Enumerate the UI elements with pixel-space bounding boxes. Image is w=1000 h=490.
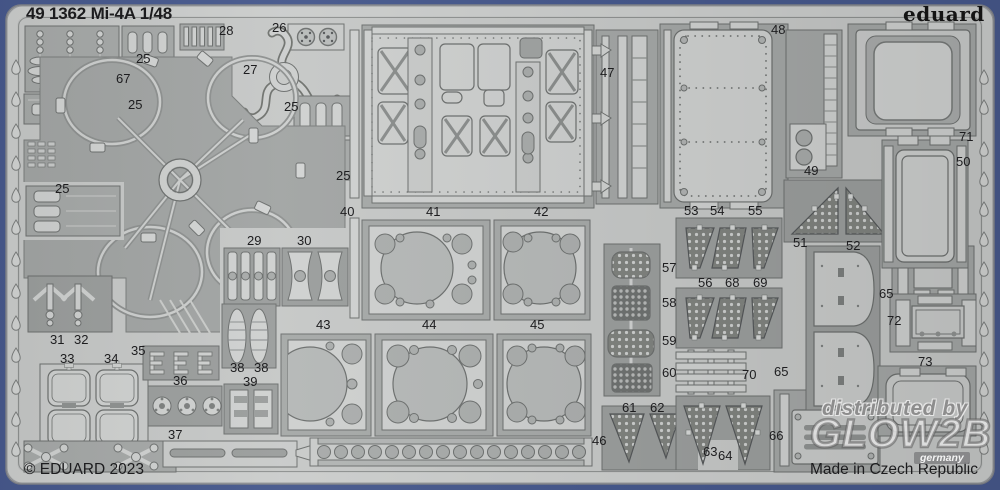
part-number-label: 59 [662,334,676,347]
part-number-label: 54 [710,204,724,217]
part-number-label: 73 [918,355,932,368]
part-number-label: 50 [956,155,970,168]
part-number-label: 42 [534,205,548,218]
watermark-germany: germany [914,452,970,464]
part-number-label: 28 [219,24,233,37]
part-number-label: 72 [887,314,901,327]
part-number-label: 70 [742,368,756,381]
part-number-label: 25 [128,98,142,111]
part-number-label: 67 [116,72,130,85]
part-number-label: 60 [662,366,676,379]
part-number-label: 32 [74,333,88,346]
eduard-logo: eduard [903,2,985,26]
part-number-label: 38 [230,361,244,374]
part-number-label: 53 [684,204,698,217]
part-number-label: 38 [254,361,268,374]
part-number-label: 47 [600,66,614,79]
part-number-label: 68 [725,276,739,289]
product-photo-frame: 6725282627252525252930313233343536383839… [0,0,1000,490]
part-number-label: 25 [336,169,350,182]
part-number-label: 55 [748,204,762,217]
part-number-label: 33 [60,352,74,365]
part-number-label: 62 [650,401,664,414]
part-number-label: 57 [662,261,676,274]
part-number-label: 39 [243,375,257,388]
watermark-glow2b: GLOW2B [810,412,992,456]
part-number-label: 65 [774,365,788,378]
copyright-text: © EDUARD 2023 [24,461,144,479]
part-number-label: 27 [243,63,257,76]
part-number-label: 65 [879,287,893,300]
part-number-label: 61 [622,401,636,414]
part-number-label: 25 [55,182,69,195]
part-number-label: 56 [698,276,712,289]
part-number-label: 66 [769,429,783,442]
part-number-label: 64 [718,449,732,462]
part-number-label: 29 [247,234,261,247]
part-number-label: 48 [771,23,785,36]
part-number-label: 46 [592,434,606,447]
part-number-label: 58 [662,296,676,309]
part-number-label: 35 [131,344,145,357]
part-number-label: 52 [846,239,860,252]
part-number-label: 69 [753,276,767,289]
part-number-label: 26 [272,21,286,34]
part-number-label: 43 [316,318,330,331]
part-number-label: 41 [426,205,440,218]
part-number-label: 37 [168,428,182,441]
part-number-label: 25 [284,100,298,113]
part-number-label: 49 [804,164,818,177]
part-number-label: 51 [793,236,807,249]
part-number-label: 34 [104,352,118,365]
part-number-label: 31 [50,333,64,346]
part-number-label: 25 [136,52,150,65]
part-number-label: 30 [297,234,311,247]
catalog-title: 49 1362 Mi-4A 1/48 [26,4,172,24]
part-number-label: 63 [703,445,717,458]
part-number-label: 45 [530,318,544,331]
part-number-label: 40 [340,205,354,218]
part-number-label: 44 [422,318,436,331]
part-number-label: 71 [959,130,973,143]
part-number-label: 36 [173,374,187,387]
